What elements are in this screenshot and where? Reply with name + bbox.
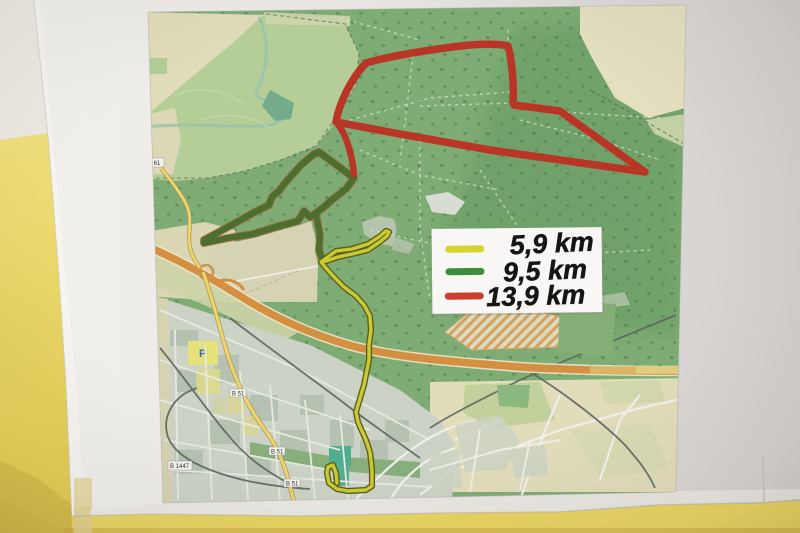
svg-text:13,9 km: 13,9 km [486,280,586,313]
